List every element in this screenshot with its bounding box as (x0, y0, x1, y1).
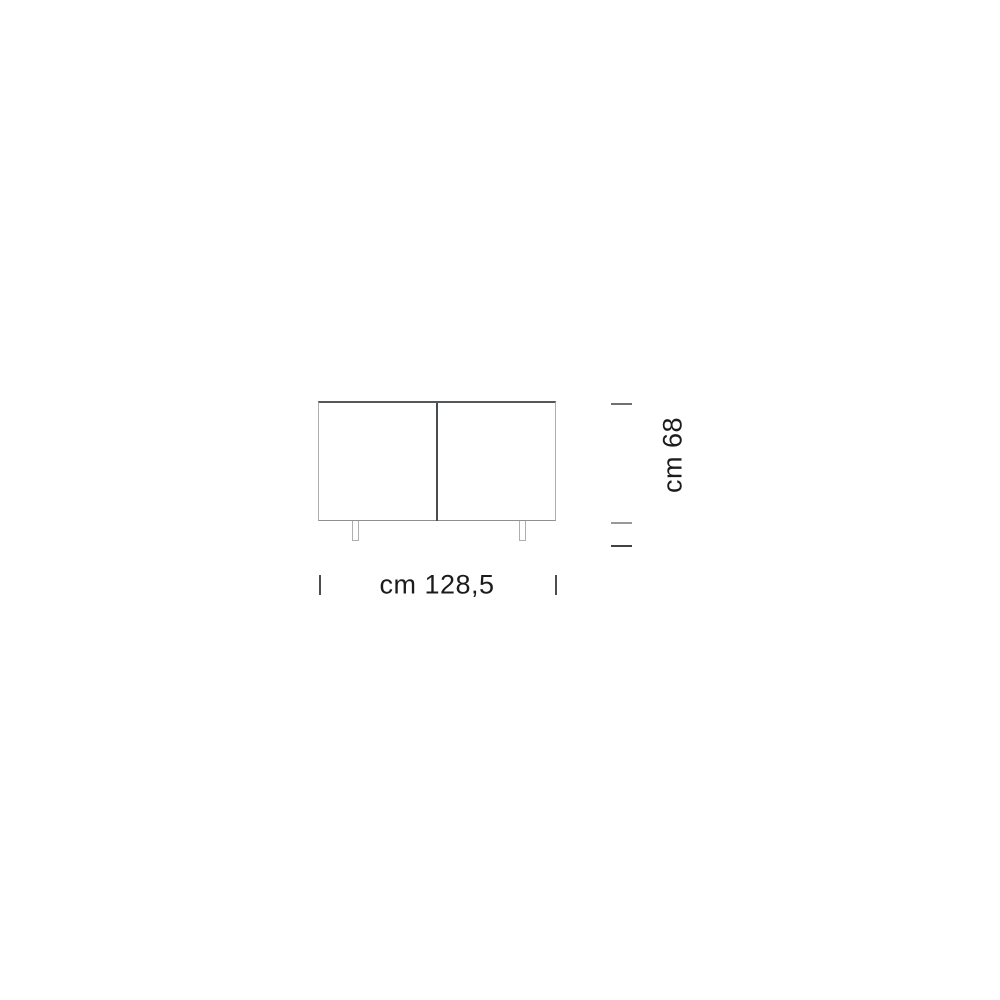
height-tick-middle (611, 522, 632, 524)
height-dimension-label: cm 68 (660, 417, 687, 493)
cabinet-outline (318, 401, 556, 521)
height-tick-bottom (611, 545, 632, 547)
cabinet-leg-right (519, 521, 526, 541)
width-tick-right (555, 575, 557, 595)
height-tick-top (611, 403, 632, 405)
width-dimension-label: cm 128,5 (379, 572, 494, 599)
cabinet-leg-left (352, 521, 359, 541)
furniture-diagram: cm 68 cm 128,5 (0, 0, 1000, 1000)
cabinet-door-divider (436, 403, 438, 521)
width-tick-left (319, 575, 321, 595)
